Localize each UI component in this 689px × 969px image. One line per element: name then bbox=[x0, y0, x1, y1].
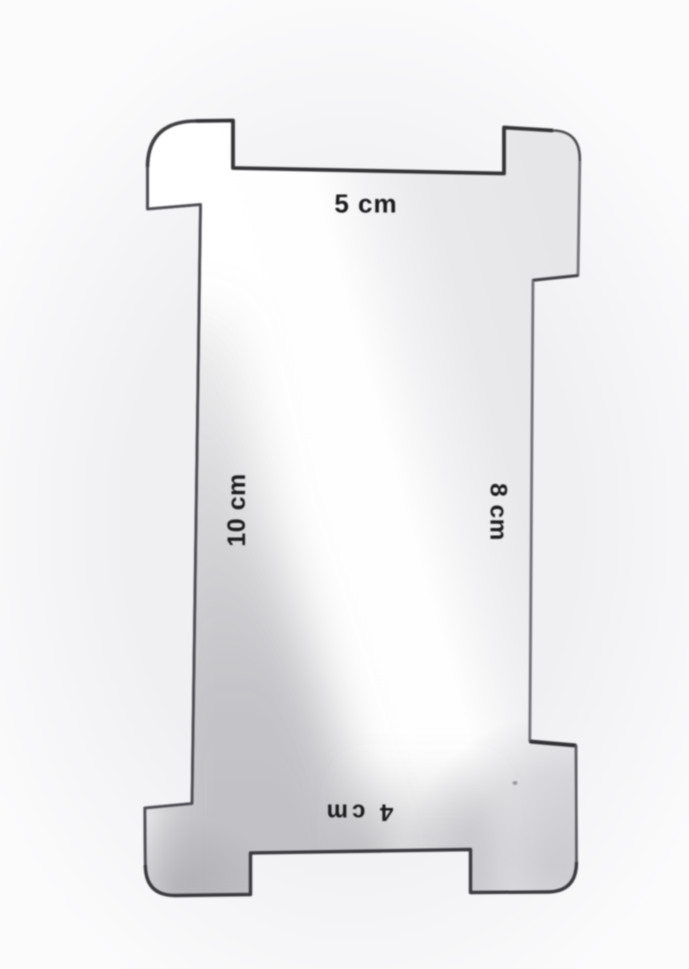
svg-text:8 cm: 8 cm bbox=[484, 483, 511, 541]
svg-text:5 cm: 5 cm bbox=[334, 189, 397, 219]
svg-text:4 cm: 4 cm bbox=[323, 798, 394, 825]
svg-text:10 cm: 10 cm bbox=[223, 473, 251, 546]
